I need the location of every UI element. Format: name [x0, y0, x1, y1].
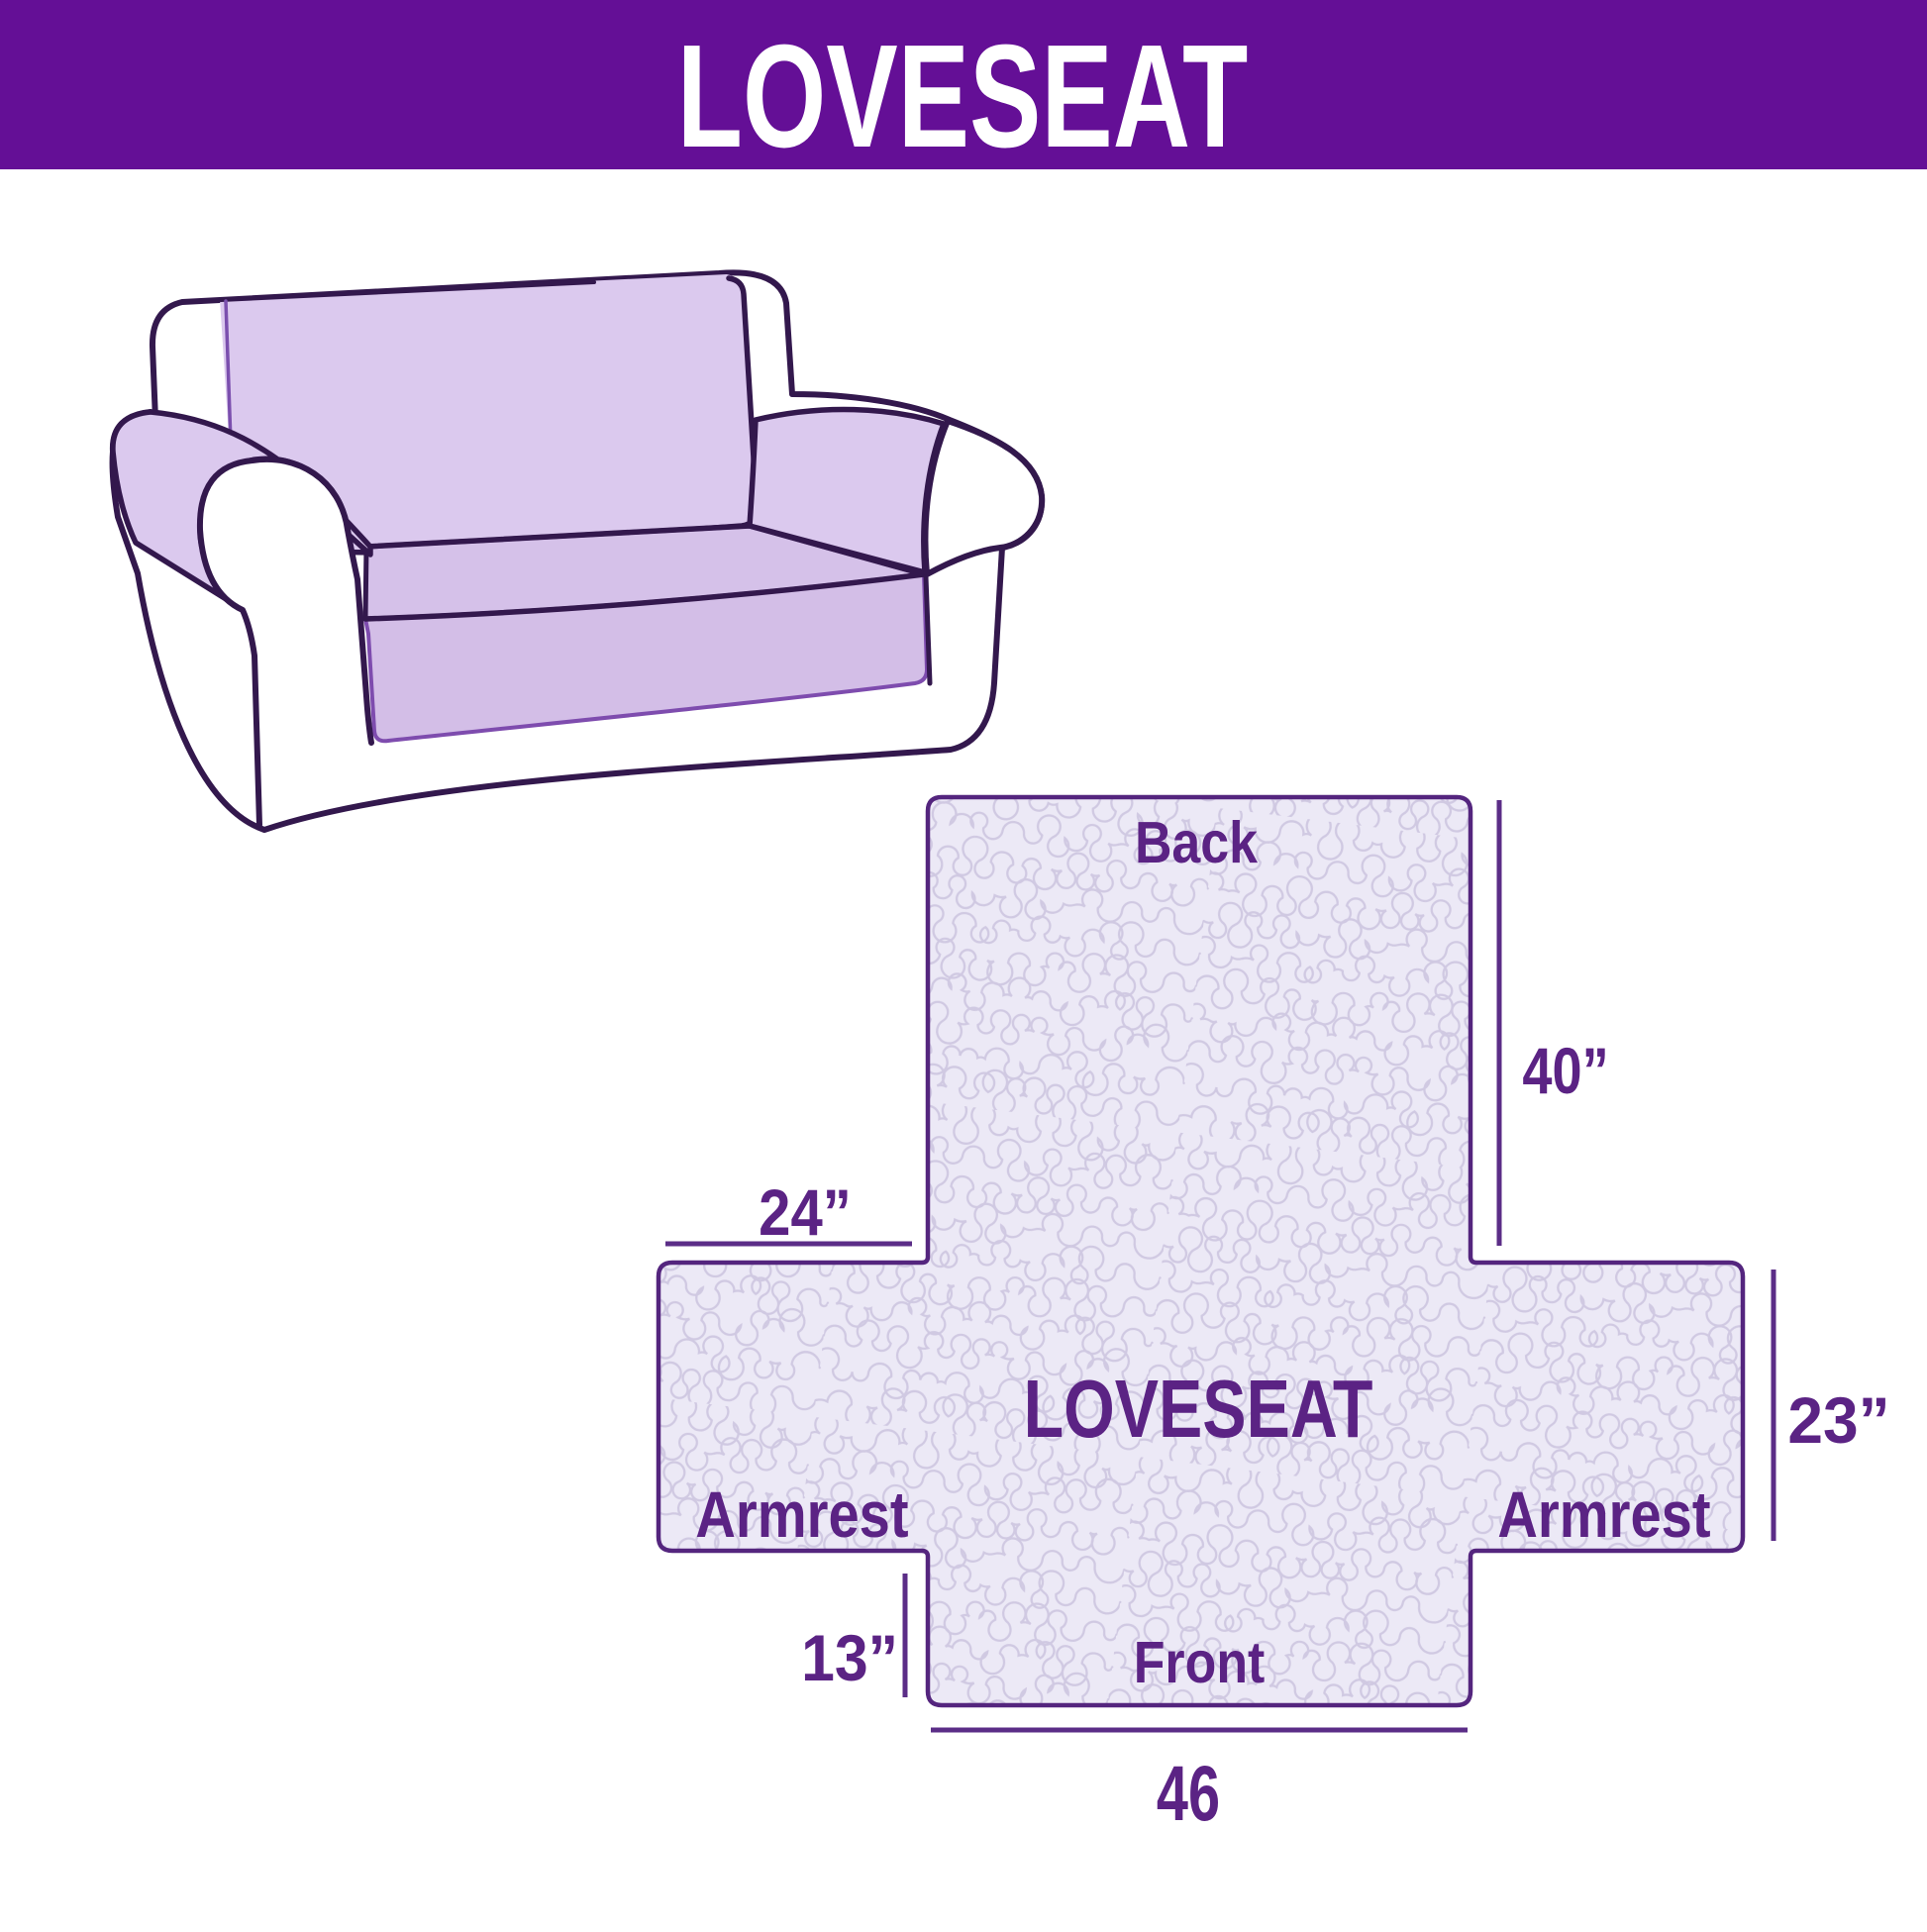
svg-text:Front: Front	[1134, 1630, 1266, 1695]
svg-text:13”: 13”	[801, 1623, 898, 1695]
svg-text:Armrest: Armrest	[695, 1478, 908, 1551]
svg-text:40”: 40”	[1522, 1034, 1608, 1107]
svg-text:46: 46	[1157, 1749, 1220, 1837]
svg-text:Armrest: Armrest	[1497, 1478, 1710, 1551]
svg-text:23”: 23”	[1787, 1383, 1889, 1457]
svg-text:LOVESEAT: LOVESEAT	[677, 16, 1249, 178]
svg-text:24”: 24”	[759, 1177, 852, 1250]
svg-text:Back: Back	[1135, 810, 1258, 875]
svg-text:LOVESEAT: LOVESEAT	[1024, 1363, 1373, 1455]
